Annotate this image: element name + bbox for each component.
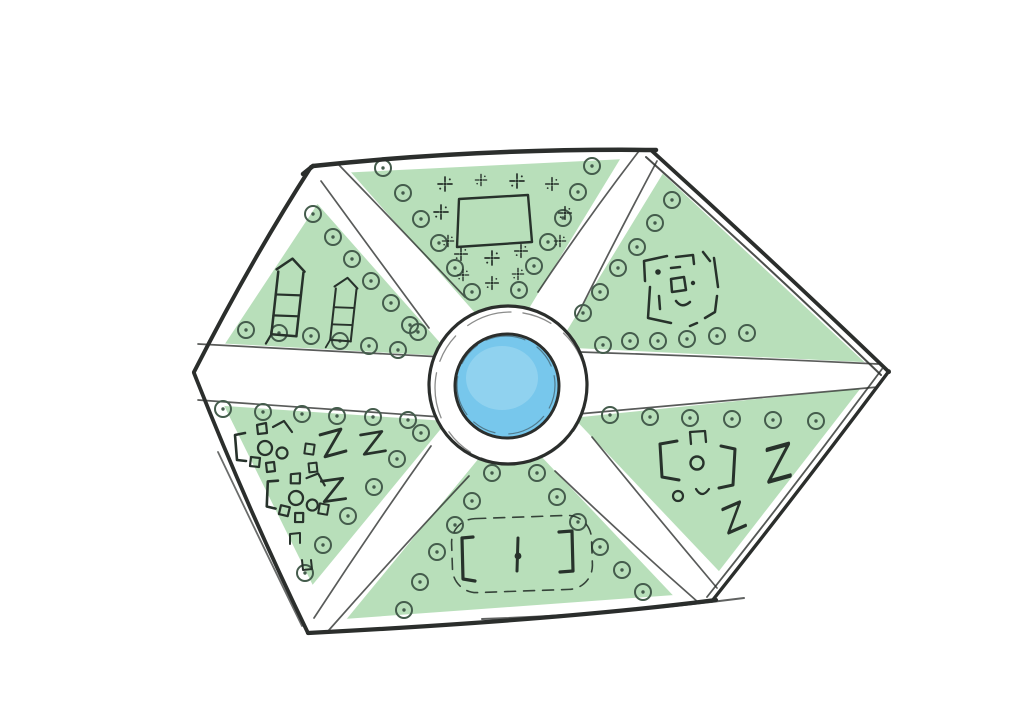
- centre-spot: [515, 553, 522, 560]
- plan-canvas: [0, 0, 1024, 711]
- pond-highlight: [466, 346, 538, 410]
- central-plaza: [429, 306, 587, 464]
- park-plan-sketch: [0, 0, 1024, 711]
